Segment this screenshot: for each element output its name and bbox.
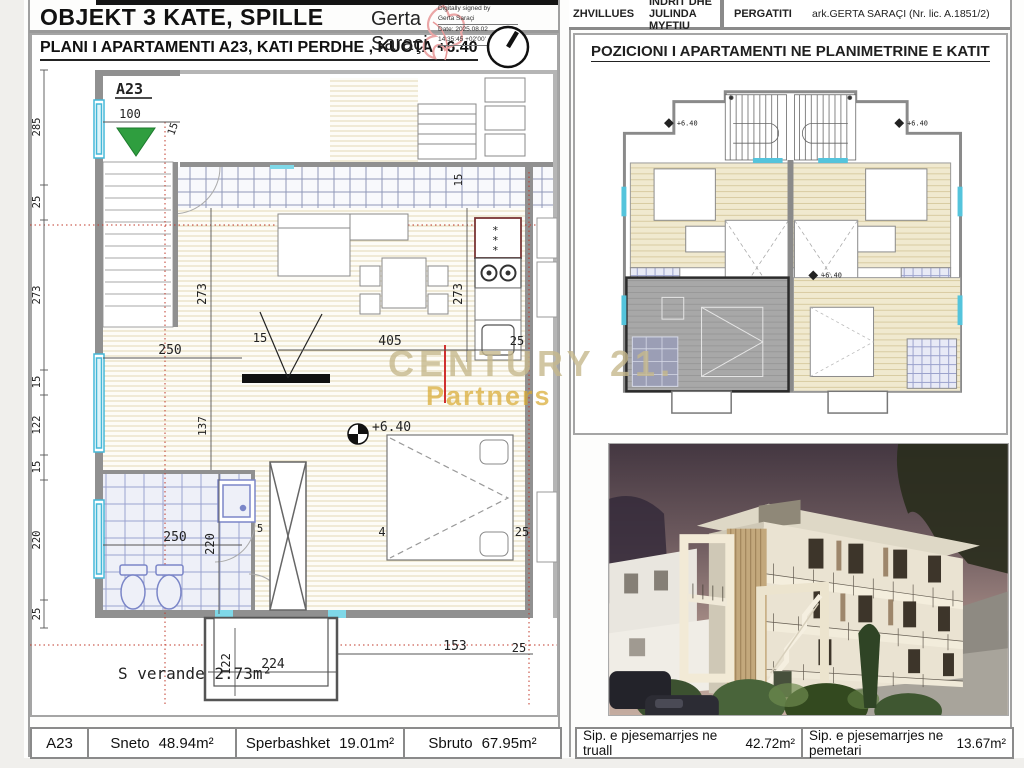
building-render (609, 444, 1008, 715)
svg-text:220: 220 (31, 531, 43, 550)
page-margin-bottom (0, 758, 1024, 768)
svg-text:25: 25 (510, 334, 524, 348)
svg-text:4: 4 (378, 525, 385, 539)
svg-text:273: 273 (195, 283, 209, 305)
unit-cell: A23 (32, 729, 89, 757)
prepared-label: PERGATITI (726, 0, 812, 27)
page-margin-left (0, 0, 24, 768)
svg-text:122: 122 (31, 416, 43, 435)
signature-name: Gerta Saraçi (371, 7, 428, 57)
pemetari-cell: Sip. e pjesemarrjes ne pemetari 13.67m² (803, 729, 1012, 757)
project-title: OBJEKT 3 KATE, SPILLE (40, 4, 324, 31)
svg-text:25: 25 (31, 196, 43, 209)
keyplan-level-label: +6.40 (677, 119, 698, 127)
svg-text:5: 5 (257, 523, 263, 535)
veranda-label: S verande 2.73m² (118, 664, 272, 683)
svg-text:15: 15 (31, 376, 43, 389)
svg-text:25: 25 (515, 525, 529, 539)
frame-line (1010, 0, 1012, 757)
svg-text:273: 273 (31, 286, 43, 305)
key-plan-panel: POZICIONI I APARTAMENTI NE PLANIMETRINE … (573, 33, 1008, 435)
developer-label: ZHVILLUES (569, 0, 649, 27)
svg-text:15: 15 (453, 174, 465, 187)
summary-bar-left: A23 Sneto 48.94m² Sperbashket 19.01m² Sb… (30, 727, 562, 759)
svg-text:285: 285 (31, 118, 43, 137)
developer-value: INDRIT DHE JULINDA MYFTIU (649, 0, 718, 27)
svg-text:*: * (492, 244, 499, 257)
frame-line (569, 0, 571, 757)
svg-text:250: 250 (163, 530, 186, 545)
key-plan-drawing: +6.40 +6.40 +6.40 (575, 62, 1006, 428)
svg-text:250: 250 (158, 343, 181, 358)
keyplan-level-label: +6.40 (907, 119, 928, 127)
keyplan-level-label: +6.40 (821, 272, 842, 280)
header-divider (720, 0, 724, 27)
render-panel (608, 443, 1009, 716)
sperbashket-cell: Sperbashket 19.01m² (237, 729, 405, 757)
floor-plan-drawing: * * * (30, 62, 557, 715)
svg-text:15: 15 (253, 331, 267, 345)
svg-text:25: 25 (512, 641, 526, 655)
svg-text:220: 220 (203, 533, 217, 555)
truall-cell: Sip. e pjesemarrjes ne truall 42.72m² (577, 729, 803, 757)
svg-text:15: 15 (165, 121, 181, 137)
clock-icon (485, 24, 531, 70)
summary-bar-right: Sip. e pjesemarrjes ne truall 42.72m² Si… (575, 727, 1014, 759)
svg-text:405: 405 (378, 334, 401, 349)
header-right-table: ZHVILLUES INDRIT DHE JULINDA MYFTIU PERG… (569, 0, 1010, 30)
svg-text:100: 100 (119, 107, 141, 121)
prepared-value: ark.GERTA SARAÇI (Nr. lic. A.1851/2) (812, 0, 1010, 27)
svg-text:153: 153 (443, 639, 466, 654)
apartment-label: A23 (116, 80, 143, 98)
plan-level-label: +6.40 (372, 420, 411, 435)
sneto-cell: Sneto 48.94m² (89, 729, 237, 757)
svg-text:25: 25 (31, 608, 43, 621)
entry-arrow (117, 128, 155, 156)
key-plan-title: POZICIONI I APARTAMENTI NE PLANIMETRINE … (591, 43, 990, 62)
svg-text:15: 15 (31, 461, 43, 474)
sbruto-cell: Sbruto 67.95m² (405, 729, 560, 757)
svg-text:137: 137 (196, 416, 209, 436)
svg-text:273: 273 (451, 283, 465, 305)
